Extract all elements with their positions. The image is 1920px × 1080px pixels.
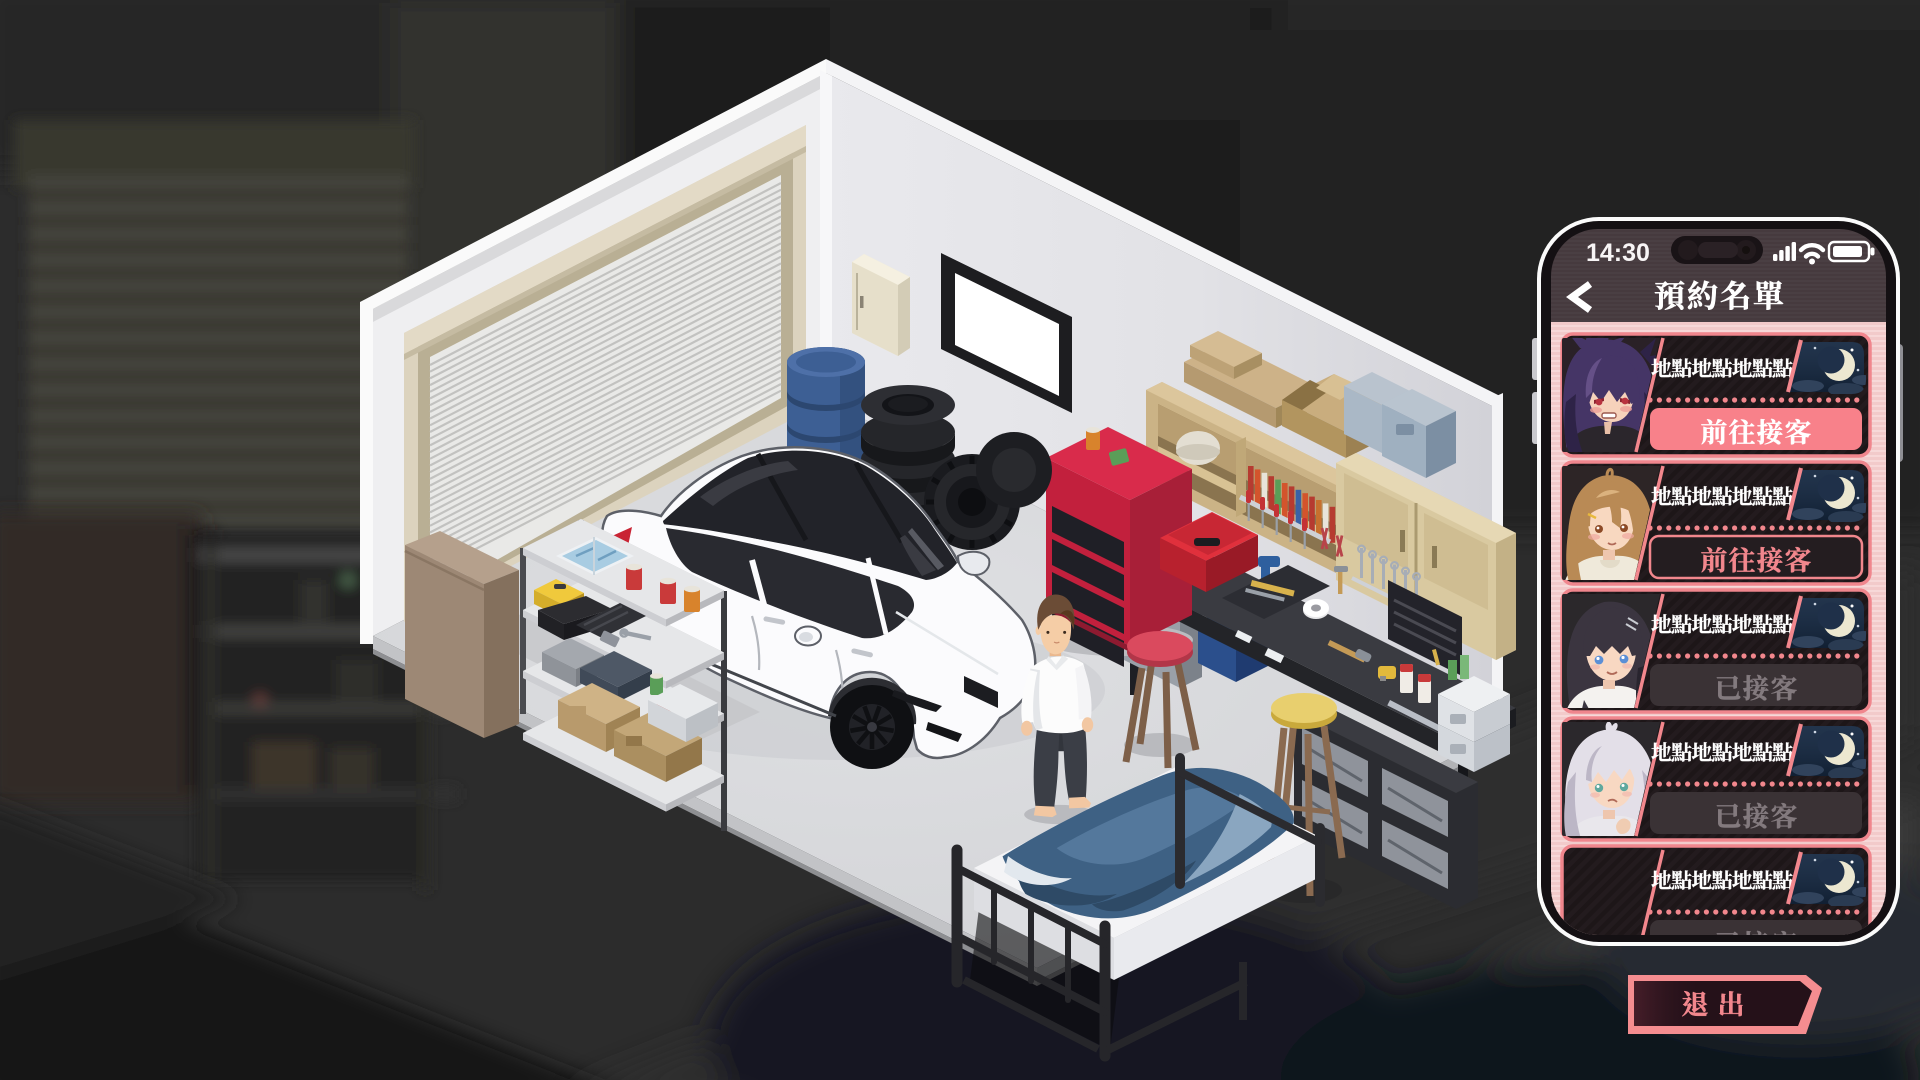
svg-text:14:30: 14:30 — [1586, 239, 1650, 267]
